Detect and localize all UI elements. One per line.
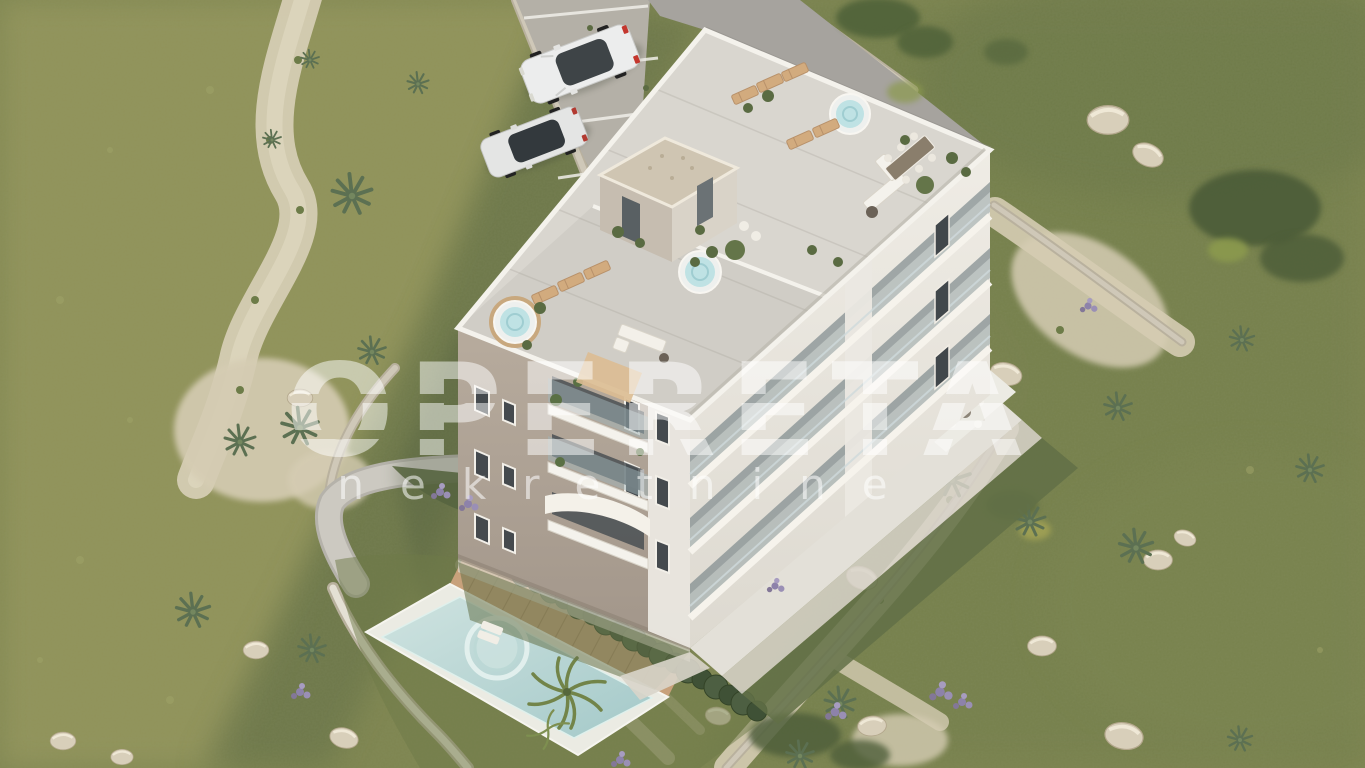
- aerial-render: OPERETA nekretnine: [0, 0, 1365, 768]
- scene-canvas: [0, 0, 1365, 768]
- hot-tub-1: [489, 296, 541, 348]
